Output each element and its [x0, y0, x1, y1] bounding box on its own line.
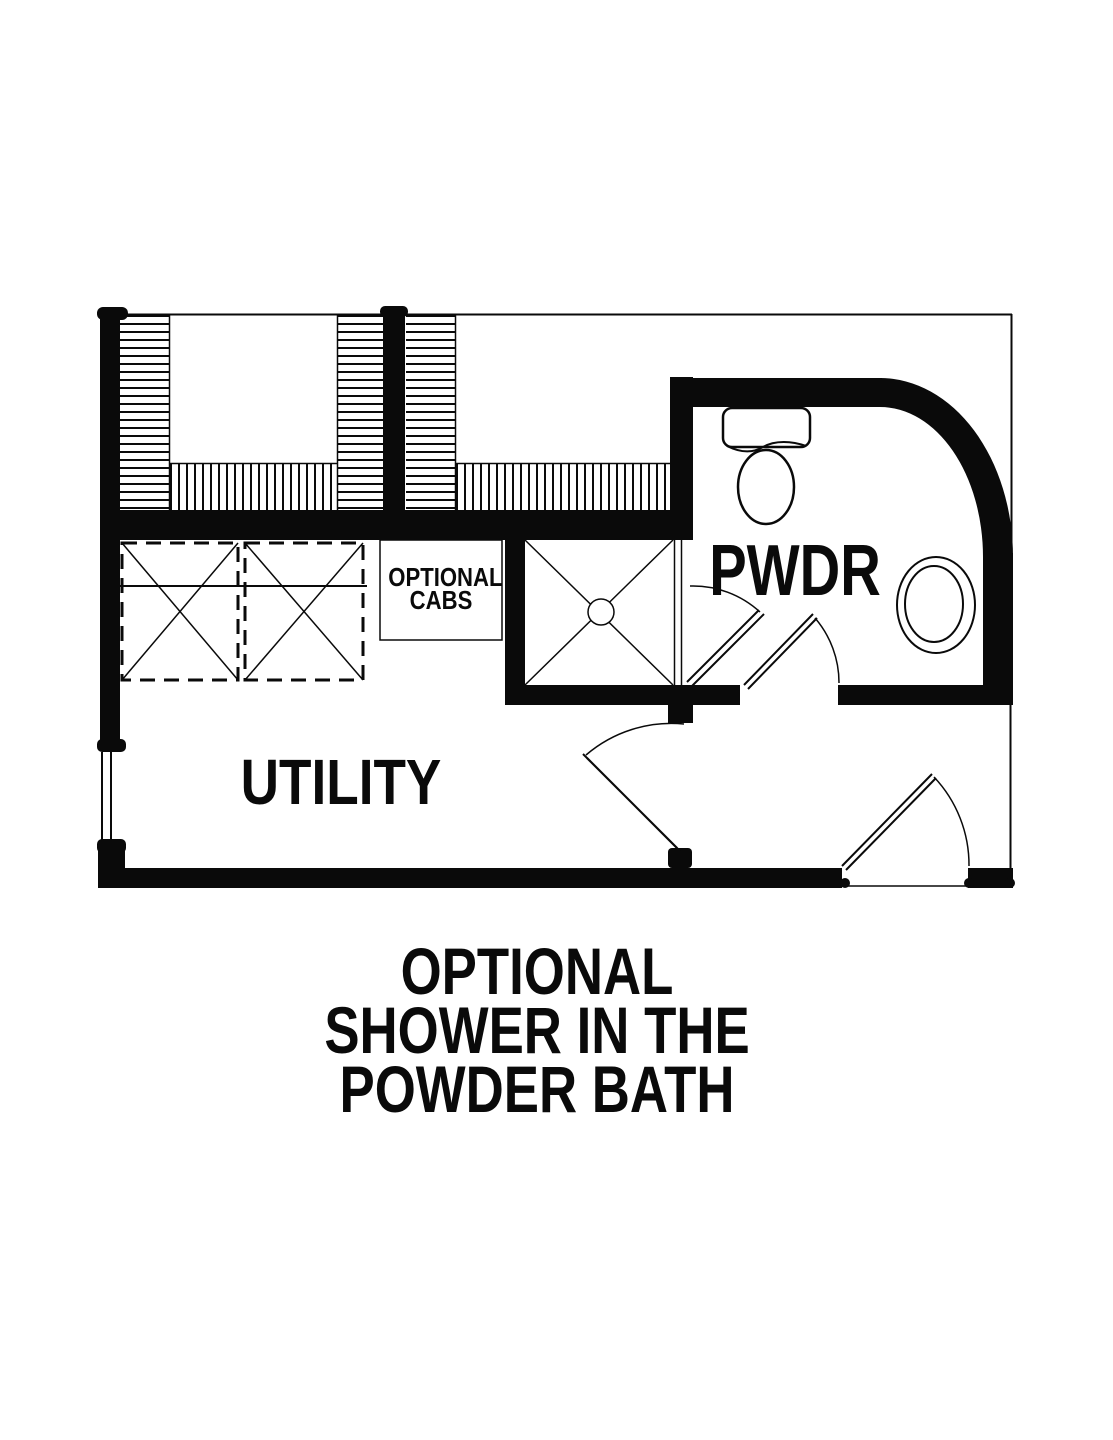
wall-stub-passage — [668, 705, 693, 723]
utility-door-swing-arc — [586, 723, 684, 755]
powder-door — [744, 614, 839, 689]
wall-powder-bottom — [838, 685, 1013, 705]
wall-bottom — [100, 868, 842, 888]
optional-cabs-label: OPTIONAL CABS — [388, 566, 493, 612]
shower-drain — [588, 599, 614, 625]
entry-door — [842, 774, 970, 886]
window-cap-top — [97, 739, 126, 752]
window-left-wall — [102, 752, 111, 840]
wall-powder-curved — [880, 378, 1013, 557]
floor-plan-drawing — [0, 0, 1113, 1440]
wall-powder-right — [983, 553, 1013, 705]
floor-plan-page: PWDR UTILITY OPTIONAL CABS OPTIONAL SHOW… — [0, 0, 1113, 1440]
optional-cabs-label-line2: CABS — [388, 589, 493, 612]
wall-cap-top-left — [97, 307, 128, 320]
entry-door-swing-arc — [934, 777, 969, 866]
stair-edge-lines — [170, 315, 671, 510]
wall-cap-stair-divider — [380, 306, 408, 317]
toilet-tank — [723, 408, 810, 447]
plan-caption: OPTIONAL SHOWER IN THE POWDER BATH — [297, 942, 777, 1119]
wall-stair-divider — [383, 313, 405, 540]
toilet — [723, 408, 810, 524]
wall-corner-bottom-left — [98, 847, 125, 888]
utility-door — [583, 723, 684, 852]
utility-room-label: UTILITY — [175, 747, 507, 817]
toilet-bowl — [738, 450, 794, 524]
powder-room-label: PWDR — [639, 533, 951, 609]
wall-powder-top — [670, 378, 882, 407]
caption-line-3: POWDER BATH — [297, 1060, 777, 1119]
wall-end-dot-right — [1005, 878, 1015, 888]
optional-washer-dryer — [120, 543, 367, 680]
wall-shower-left — [505, 540, 525, 705]
powder-door-swing-arc — [815, 618, 839, 683]
wall-shower-bottom — [505, 685, 740, 705]
